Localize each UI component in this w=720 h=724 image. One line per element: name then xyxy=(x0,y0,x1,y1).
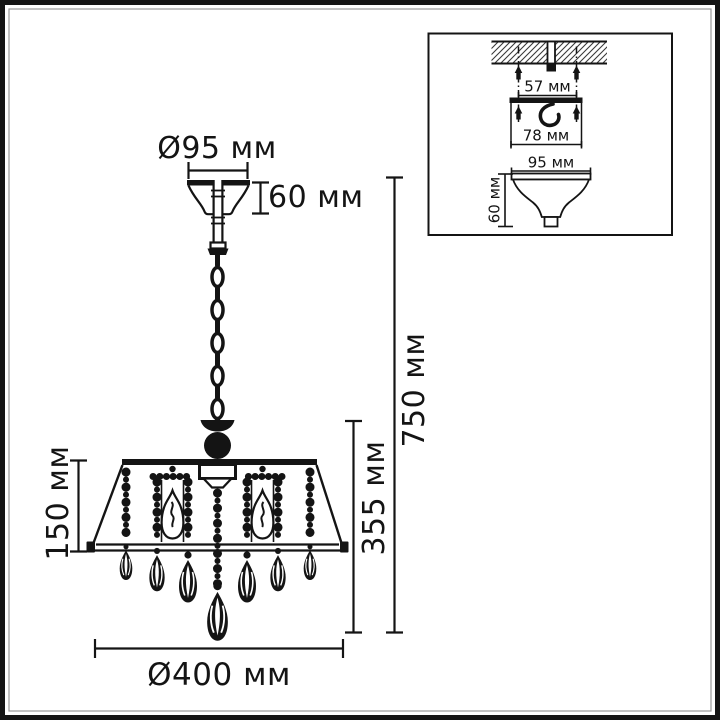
center-column xyxy=(207,493,228,641)
crystal-drop xyxy=(179,551,197,602)
label-fixture-height: 355 мм xyxy=(357,440,392,555)
crystal-drop-center xyxy=(207,582,228,641)
diagram-svg: Ø95 мм 60 мм xyxy=(0,0,720,720)
center-hub xyxy=(200,465,236,479)
label-shade-height: 150 мм xyxy=(41,445,76,560)
crystal-drop xyxy=(149,548,164,591)
bead-string-left xyxy=(120,472,133,580)
chain xyxy=(212,252,223,424)
dim-canopy-height: 60 мм xyxy=(252,180,363,215)
finial-cup xyxy=(201,420,235,432)
label-bottom-diameter: Ø400 мм xyxy=(147,657,291,693)
label-plate-width: 78 мм xyxy=(523,127,570,145)
mounting-inset: 57 мм 78 мм 95 мм xyxy=(429,34,673,236)
label-top-diameter: Ø95 мм xyxy=(157,131,277,166)
finial-ball xyxy=(204,432,231,459)
main-view: Ø95 мм 60 мм xyxy=(41,131,432,693)
label-canopy-height: 60 мм xyxy=(268,180,363,215)
dim-shade-height: 150 мм xyxy=(41,445,87,560)
label-canopy-diameter: 95 мм xyxy=(528,154,575,172)
dim-total-height: 750 мм xyxy=(386,178,432,633)
bead-string-right xyxy=(304,472,317,580)
candle-assembly-left xyxy=(149,466,197,603)
candle-assembly-right xyxy=(238,466,286,603)
dim-top-diameter: Ø95 мм xyxy=(157,131,277,179)
ceiling-bolt xyxy=(547,42,557,72)
label-canopy-height-inset: 60 мм xyxy=(486,177,504,224)
dim-anchor-spacing: 57 мм xyxy=(519,78,577,100)
canopy xyxy=(187,180,250,256)
chandelier-dimension-diagram: Ø95 мм 60 мм xyxy=(0,0,720,720)
label-total-height: 750 мм xyxy=(397,332,432,447)
label-anchor-spacing: 57 мм xyxy=(524,78,571,96)
dim-fixture-height: 355 мм xyxy=(345,421,392,633)
dim-bottom-diameter: Ø400 мм xyxy=(95,639,343,693)
